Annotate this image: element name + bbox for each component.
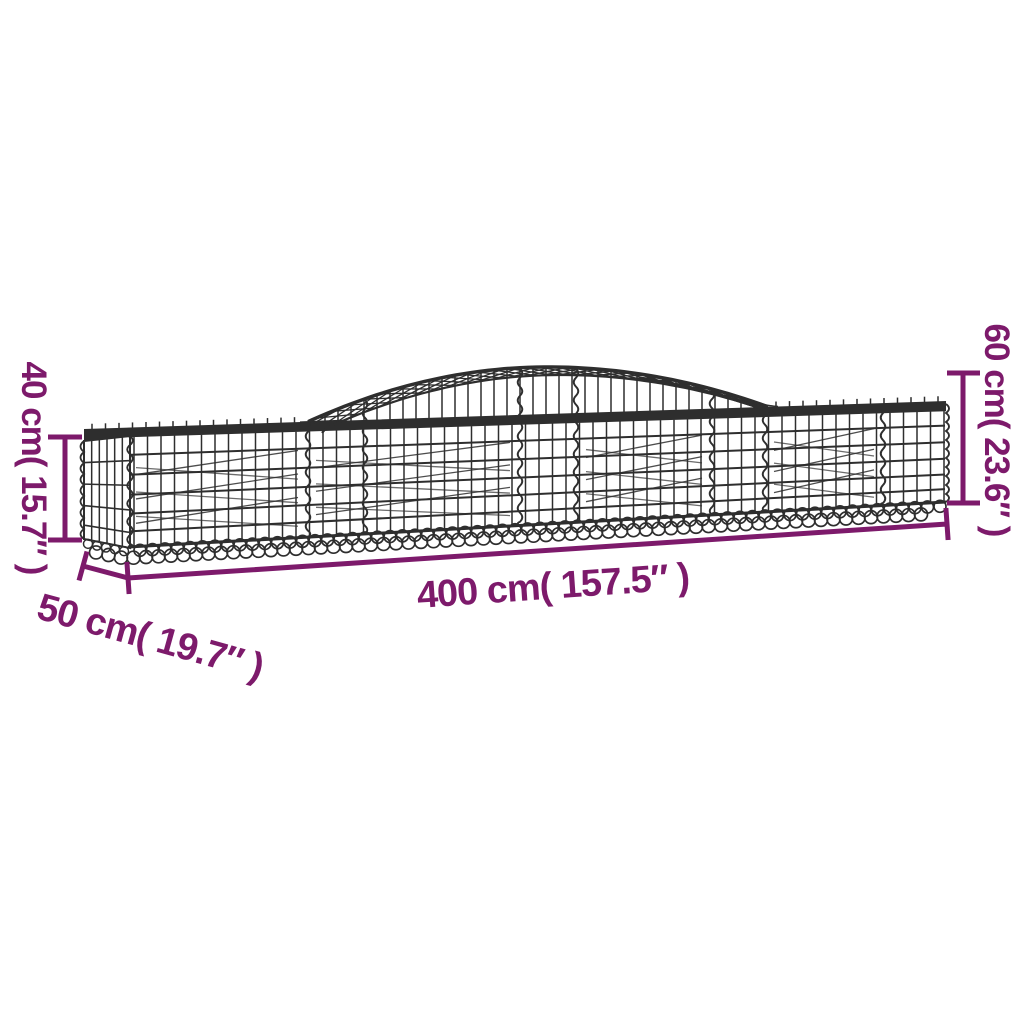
- gabion-basket-illustration: [0, 0, 1024, 1024]
- basket-left-end: [81, 436, 131, 548]
- dimension-label-total-height: 60 cm( 23.6″ ): [976, 324, 1016, 537]
- dimension-line-front-height: [48, 437, 82, 540]
- basket-svg: [0, 0, 1024, 1024]
- dimension-label-front-height: 40 cm( 15.7″ ): [13, 362, 53, 575]
- dimension-line-depth: [79, 552, 128, 581]
- product-dimension-diagram: 40 cm( 15.7″ ) 60 cm( 23.6″ ) 400 cm( 15…: [0, 0, 1024, 1024]
